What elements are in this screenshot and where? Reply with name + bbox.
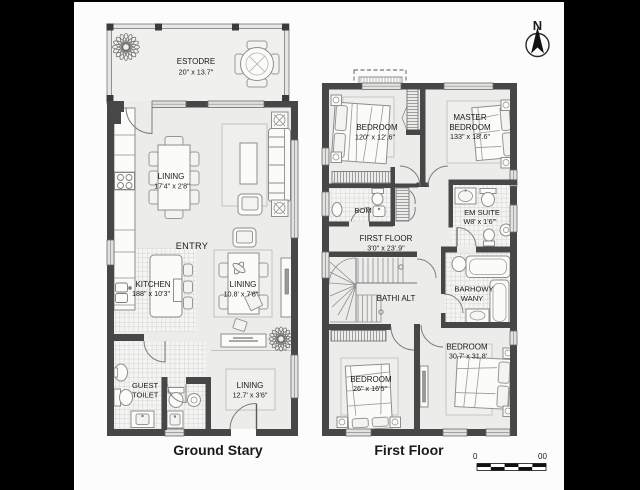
svg-text:KITCHEN: KITCHEN <box>135 280 170 289</box>
svg-text:12.7' x 3'6": 12.7' x 3'6" <box>233 391 268 400</box>
svg-text:BEDROOM: BEDROOM <box>449 123 491 132</box>
svg-text:3'0" x 23'.9": 3'0" x 23'.9" <box>367 244 405 253</box>
svg-text:133" x 18'.6": 133" x 18'.6" <box>450 132 490 141</box>
svg-text:20" x 13.7": 20" x 13.7" <box>179 68 214 77</box>
svg-text:30.7' x 31.8': 30.7' x 31.8' <box>449 352 488 361</box>
svg-text:EM SUITE: EM SUITE <box>464 208 500 217</box>
svg-text:BEDROOM: BEDROOM <box>350 375 392 384</box>
svg-text:BARHOWY: BARHOWY <box>454 285 493 294</box>
svg-text:LINING: LINING <box>230 280 257 289</box>
svg-text:MASTER: MASTER <box>453 113 487 122</box>
svg-text:10.8' x 7'8": 10.8' x 7'8" <box>224 290 259 299</box>
svg-text:Ground Stary: Ground Stary <box>173 442 263 458</box>
svg-text:ENTRY: ENTRY <box>176 241 208 251</box>
svg-text:GUEST: GUEST <box>132 381 159 390</box>
svg-text:BEDROOM: BEDROOM <box>446 343 488 352</box>
svg-text:188" x 10'3": 188" x 10'3" <box>132 289 170 298</box>
svg-text:26" x 16'5": 26" x 16'5" <box>353 384 387 393</box>
svg-text:BATHI ALT: BATHI ALT <box>377 294 416 303</box>
svg-text:W8' x 1'6"': W8' x 1'6"' <box>463 217 497 226</box>
svg-text:0: 0 <box>473 452 478 461</box>
svg-text:LINING: LINING <box>237 381 264 390</box>
svg-text:TOILET: TOILET <box>132 391 159 400</box>
svg-text:BEDROOM: BEDROOM <box>356 123 398 132</box>
svg-text:LINING: LINING <box>158 172 185 181</box>
svg-text:120" x 12'.6": 120" x 12'.6" <box>355 133 395 142</box>
svg-text:First Floor: First Floor <box>374 442 444 458</box>
svg-text:17'4" x 2'8": 17'4" x 2'8" <box>154 182 190 191</box>
svg-text:ESTODRE: ESTODRE <box>177 57 216 66</box>
svg-text:FIRST FLOOR: FIRST FLOOR <box>360 234 413 243</box>
svg-text:WANY: WANY <box>461 294 484 303</box>
svg-text:00: 00 <box>538 452 547 461</box>
